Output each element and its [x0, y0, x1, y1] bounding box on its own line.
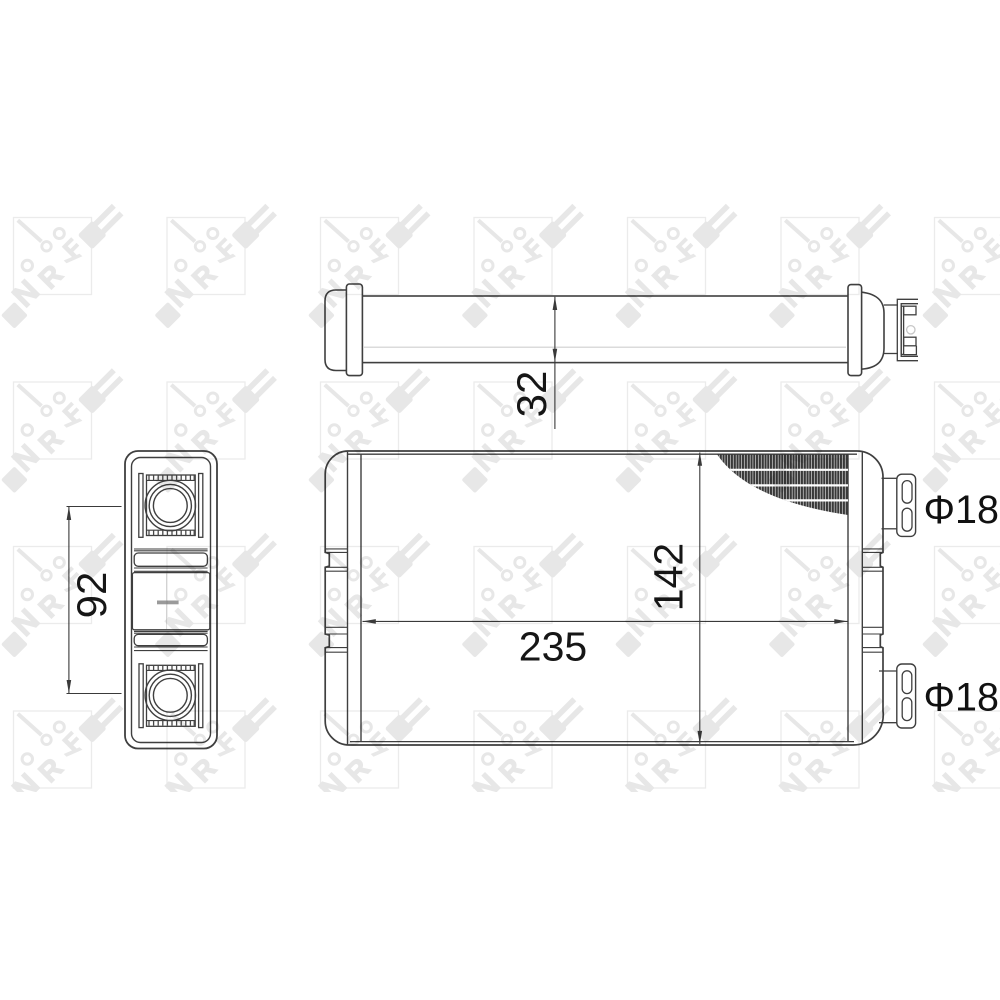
svg-text:235: 235: [519, 624, 587, 670]
svg-text:Φ18: Φ18: [924, 488, 999, 532]
